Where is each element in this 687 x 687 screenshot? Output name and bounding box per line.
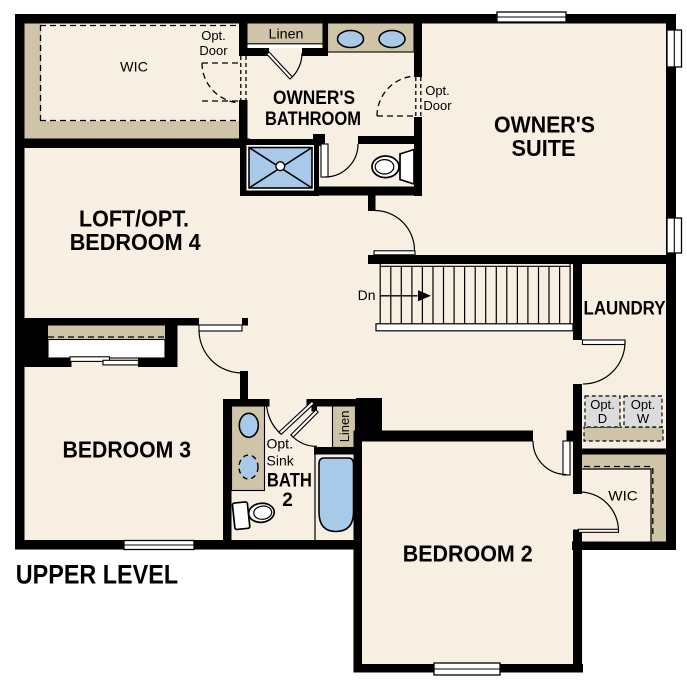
svg-text:SUITE: SUITE xyxy=(512,135,576,161)
svg-text:Opt.: Opt. xyxy=(201,28,226,43)
svg-text:OWNER'S: OWNER'S xyxy=(273,88,355,109)
svg-text:Door: Door xyxy=(423,98,452,113)
svg-text:Linen: Linen xyxy=(269,26,304,42)
svg-text:Opt.: Opt. xyxy=(631,397,656,412)
svg-text:Sink: Sink xyxy=(267,453,295,469)
svg-text:BATH: BATH xyxy=(267,470,312,491)
svg-text:D: D xyxy=(598,411,607,426)
svg-text:Linen: Linen xyxy=(337,410,352,442)
svg-text:BEDROOM 3: BEDROOM 3 xyxy=(63,436,192,462)
svg-text:Opt.: Opt. xyxy=(590,397,615,412)
svg-text:LAUNDRY: LAUNDRY xyxy=(584,299,666,320)
svg-text:Dn: Dn xyxy=(358,287,376,303)
svg-text:Door: Door xyxy=(199,43,228,58)
svg-text:W: W xyxy=(637,411,650,426)
svg-text:2: 2 xyxy=(282,490,293,511)
svg-text:WIC: WIC xyxy=(120,59,148,75)
svg-text:Opt.: Opt. xyxy=(425,83,450,98)
svg-text:BEDROOM 4: BEDROOM 4 xyxy=(70,229,201,255)
svg-text:BEDROOM 2: BEDROOM 2 xyxy=(403,540,533,566)
svg-text:BATHROOM: BATHROOM xyxy=(265,109,361,130)
svg-text:UPPER LEVEL: UPPER LEVEL xyxy=(16,559,178,589)
svg-text:OWNER'S: OWNER'S xyxy=(494,112,595,138)
svg-text:Opt.: Opt. xyxy=(267,436,293,452)
svg-text:LOFT/OPT.: LOFT/OPT. xyxy=(79,205,189,231)
svg-text:WIC: WIC xyxy=(608,488,638,504)
